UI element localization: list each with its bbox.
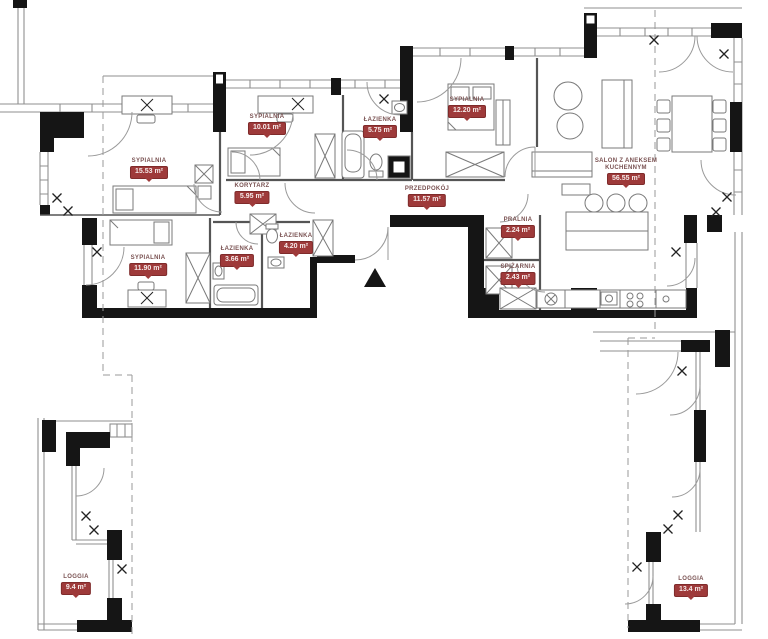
room-name: ŁAZIENKA (280, 233, 313, 240)
room-label-pralnia: PRALNIA2.24 m² (501, 217, 535, 238)
room-area-badge: 3.66 m² (220, 254, 254, 267)
labels-layer: SYPIALNIA15.53 m²SYPIALNIA10.01 m²KORYTA… (0, 0, 768, 639)
room-name: PRALNIA (504, 217, 533, 224)
room-area-badge: 10.01 m² (248, 122, 286, 135)
room-label-sypialnia-2: SYPIALNIA10.01 m² (248, 114, 286, 135)
room-name: LOGGIA (63, 574, 88, 581)
room-name: SYPIALNIA (131, 255, 166, 262)
room-label-salon: SALON Z ANEKSEM KUCHENNYM56.55 m² (593, 158, 659, 185)
room-label-sypialnia-1: SYPIALNIA15.53 m² (130, 158, 168, 179)
room-name: ŁAZIENKA (221, 246, 254, 253)
room-label-loggia-1: LOGGIA9.4 m² (61, 574, 91, 595)
room-name: SYPIALNIA (250, 114, 285, 121)
room-area-badge: 56.55 m² (607, 173, 645, 186)
room-area-badge: 11.57 m² (408, 194, 446, 207)
room-name: SYPIALNIA (450, 97, 485, 104)
room-label-loggia-2: LOGGIA13.4 m² (674, 576, 708, 597)
room-area-badge: 15.53 m² (130, 166, 168, 179)
floor-plan-stage: SYPIALNIA15.53 m²SYPIALNIA10.01 m²KORYTA… (0, 0, 768, 639)
room-name: SALON Z ANEKSEM KUCHENNYM (593, 158, 659, 172)
room-name: SYPIALNIA (132, 158, 167, 165)
room-label-sypialnia-4: SYPIALNIA11.90 m² (129, 255, 167, 276)
room-label-spizarnia: SPIŻARNIA2.43 m² (500, 264, 535, 285)
room-name: SPIŻARNIA (500, 264, 535, 271)
room-area-badge: 9.4 m² (61, 582, 91, 595)
room-label-sypialnia-3: SYPIALNIA12.20 m² (448, 97, 486, 118)
room-name: LOGGIA (678, 576, 703, 583)
room-area-badge: 5.75 m² (363, 125, 397, 138)
room-area-badge: 5.95 m² (235, 191, 269, 204)
room-area-badge: 13.4 m² (674, 584, 708, 597)
room-area-badge: 4.20 m² (279, 241, 313, 254)
room-area-badge: 11.90 m² (129, 263, 167, 276)
room-label-lazienka-1: ŁAZIENKA5.75 m² (363, 117, 397, 138)
room-name: KORYTARZ (234, 183, 269, 190)
room-label-lazienka-3: ŁAZIENKA4.20 m² (279, 233, 313, 254)
room-name: ŁAZIENKA (364, 117, 397, 124)
room-label-korytarz: KORYTARZ5.95 m² (234, 183, 269, 204)
room-area-badge: 2.24 m² (501, 225, 535, 238)
room-label-lazienka-2: ŁAZIENKA3.66 m² (220, 246, 254, 267)
room-name: PRZEDPOKÓJ (405, 186, 449, 193)
room-label-przedpokoj: PRZEDPOKÓJ11.57 m² (405, 186, 449, 207)
room-area-badge: 12.20 m² (448, 105, 486, 118)
room-area-badge: 2.43 m² (501, 272, 535, 285)
